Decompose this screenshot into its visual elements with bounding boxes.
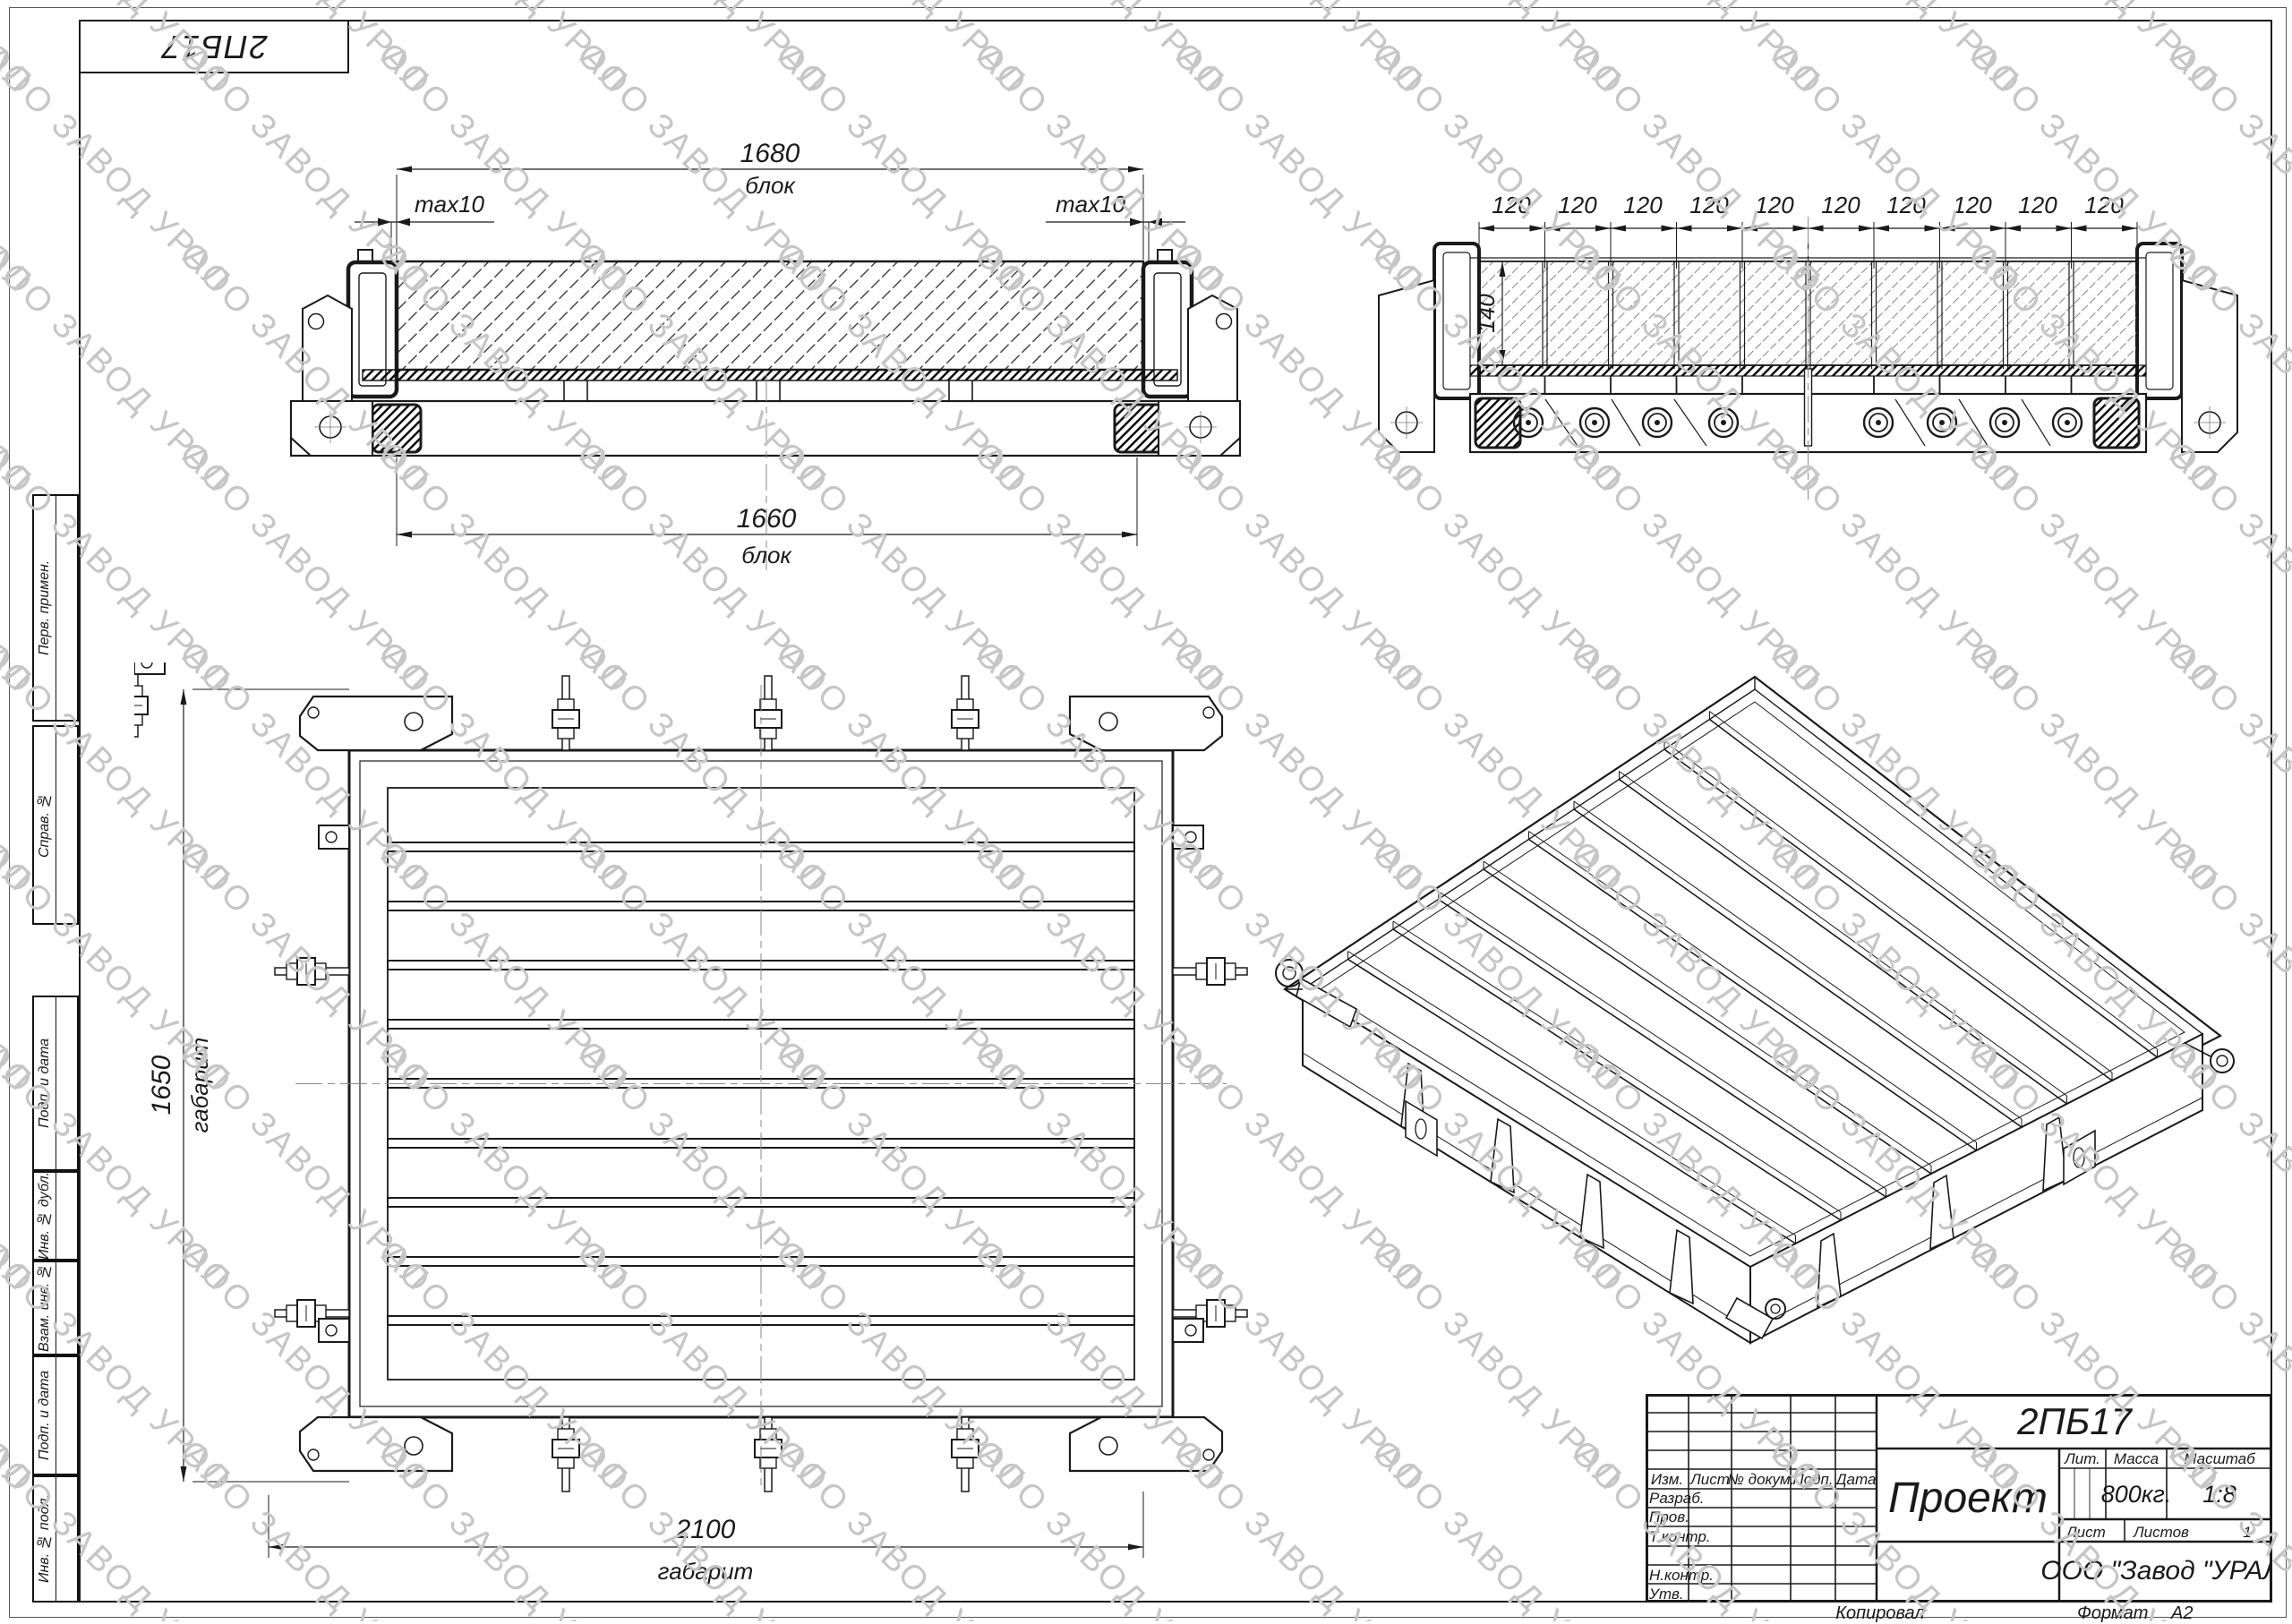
section-view-drawing: 120 120 120 120 120 120 120 120 120 120 … <box>1370 134 2292 519</box>
plan-view-drawing: 1650 габарит 2100 габарит <box>134 662 1253 1611</box>
dim-120-label: 120 <box>1558 192 1597 218</box>
tb-row-nkontr: Н.контр. <box>1649 1567 1714 1584</box>
dim-120-label: 120 <box>1492 192 1531 218</box>
tb-doc-name: Проект <box>1888 1474 2048 1522</box>
dim-max10-right: max10 <box>1056 191 1126 218</box>
strip-field-inv-podl: Инв. № подл. <box>32 1475 79 1603</box>
dim-1660-note: блок <box>741 542 792 568</box>
strip-field-podp-data-2: Подп. и дата <box>32 1355 79 1475</box>
dim-2100-note: габарит <box>658 1558 754 1585</box>
tb-sheets-label: Листов <box>2133 1524 2189 1541</box>
tb-row-utv: Утв. <box>1648 1586 1684 1603</box>
tb-lit-label: Лит. <box>2064 1450 2100 1467</box>
dim-120-label: 120 <box>1953 192 1992 218</box>
dim-120-label: 120 <box>1886 192 1926 218</box>
tb-row-razrab: Разраб. <box>1649 1490 1705 1507</box>
tb-mass-label: Масса <box>2114 1450 2159 1467</box>
dim-1650-note: габарит <box>186 1038 213 1133</box>
tb-designation: 2ПБ17 <box>2016 1400 2133 1442</box>
dim-120-label: 120 <box>2084 192 2124 218</box>
tb-sheet-label: Лист <box>2065 1524 2106 1541</box>
tb-col-ndoc: № докум. <box>1728 1471 1795 1488</box>
strip-field-inv-dubl: Инв. № дубл. <box>32 1171 79 1261</box>
dim-120-label: 120 <box>1821 192 1860 218</box>
tb-row-tkontr: Т.контр. <box>1649 1528 1711 1545</box>
tb-col-podp: Подп. <box>1792 1471 1833 1488</box>
strip-field-perv-primen: Перв. примен. <box>32 494 79 722</box>
dim-1650-label: 1650 <box>147 1055 176 1115</box>
strip-field-vzam-inv: Взам. инв. № <box>32 1261 79 1355</box>
title-block: Изм. Лист № докум. Подп. Дата Разраб. Пр… <box>1646 1394 2272 1603</box>
dim-1660-label: 1660 <box>737 504 797 534</box>
corner-designation-text: 2ПБ17 <box>160 28 268 65</box>
drawing-sheet: 2ПБ17 Перв. примен. Справ. № Подп. и дат… <box>0 0 2292 1621</box>
tb-row-prov: Пров. <box>1649 1509 1689 1526</box>
dim-120-label: 120 <box>1755 192 1794 218</box>
dim-120-label: 120 <box>1689 192 1729 218</box>
dim-140-label: 140 <box>1473 294 1500 333</box>
strip-field-podp-data-1: Подп. и дата <box>32 996 79 1171</box>
tb-scale-label: Масштаб <box>2184 1450 2256 1467</box>
strip-field-sprav-no: Справ. № <box>32 725 79 925</box>
dim-1680-label: 1680 <box>740 139 800 168</box>
tb-col-list: Лист <box>1689 1471 1730 1488</box>
tb-mass-value: 800кг. <box>2101 1481 2172 1508</box>
corner-designation-stamp: 2ПБ17 <box>79 20 349 73</box>
dim-120-label: 120 <box>2018 192 2057 218</box>
dim-120-label: 120 <box>1623 192 1663 218</box>
tb-scale-value: 1:8 <box>2202 1481 2236 1508</box>
dim-2100-label: 2100 <box>675 1515 736 1544</box>
tb-company: ООО "Завод "УРАЛ" <box>2040 1556 2272 1586</box>
isometric-view-drawing <box>1271 640 2292 1383</box>
tb-sheets-value: 1 <box>2243 1524 2251 1541</box>
tb-col-izm: Изм. <box>1651 1471 1683 1488</box>
dim-max10-left: max10 <box>415 191 485 218</box>
dim-1680-note: блок <box>745 172 796 199</box>
side-view-drawing: 1680 блок max10 max10 1660 блок <box>206 125 1253 591</box>
tb-col-data: Дата <box>1834 1471 1877 1488</box>
